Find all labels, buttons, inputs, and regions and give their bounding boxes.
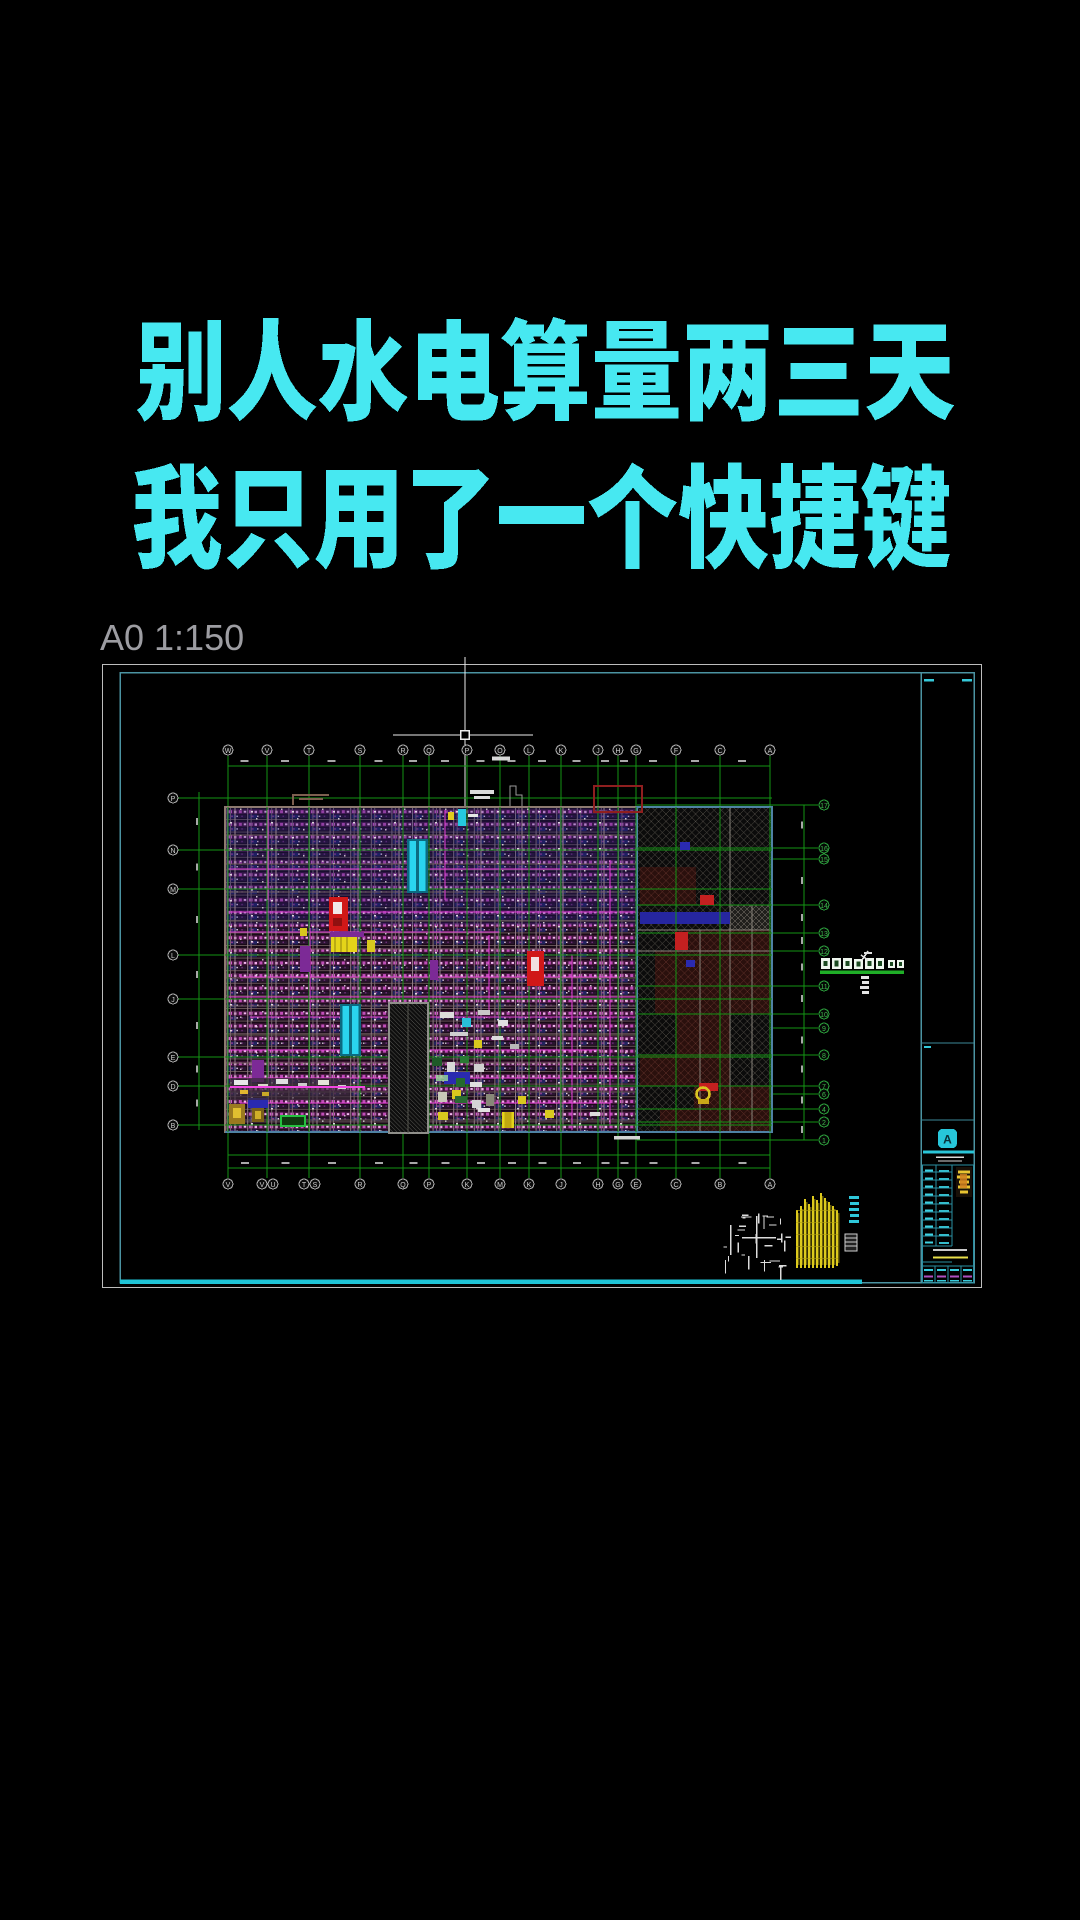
svg-text:J: J xyxy=(559,1182,563,1189)
svg-text:P: P xyxy=(427,1182,432,1189)
svg-text:V: V xyxy=(265,748,270,755)
svg-text:T: T xyxy=(307,748,312,755)
svg-text:9: 9 xyxy=(822,1026,826,1033)
svg-text:11: 11 xyxy=(820,984,827,991)
svg-text:R: R xyxy=(400,748,405,755)
svg-text:L: L xyxy=(527,748,531,755)
svg-text:J: J xyxy=(171,997,175,1004)
svg-text:16: 16 xyxy=(820,846,828,853)
svg-text:A: A xyxy=(768,748,773,755)
svg-text:A: A xyxy=(768,1182,773,1189)
svg-text:1: 1 xyxy=(822,1138,826,1145)
svg-text:15: 15 xyxy=(820,857,828,864)
svg-text:10: 10 xyxy=(820,1012,828,1019)
svg-text:13: 13 xyxy=(820,931,828,938)
svg-text:S: S xyxy=(313,1182,318,1189)
svg-text:M: M xyxy=(170,887,176,894)
svg-text:W: W xyxy=(225,748,232,755)
svg-text:B: B xyxy=(718,1182,723,1189)
svg-text:P: P xyxy=(171,796,176,803)
svg-text:A0 1:150: A0 1:150 xyxy=(100,617,244,658)
svg-text:B: B xyxy=(171,1123,176,1130)
svg-text:H: H xyxy=(595,1182,600,1189)
svg-text:T: T xyxy=(302,1182,307,1189)
svg-text:J: J xyxy=(596,748,600,755)
svg-text:G: G xyxy=(633,748,638,755)
svg-text:E: E xyxy=(634,1182,639,1189)
svg-text:F: F xyxy=(674,748,678,755)
svg-text:H: H xyxy=(615,748,620,755)
svg-text:L: L xyxy=(171,953,175,960)
svg-text:P: P xyxy=(465,748,470,755)
svg-text:K: K xyxy=(527,1182,532,1189)
svg-text:V: V xyxy=(226,1182,231,1189)
svg-text:V: V xyxy=(260,1182,265,1189)
svg-text:14: 14 xyxy=(820,903,828,910)
svg-text:N: N xyxy=(170,848,175,855)
svg-text:Q: Q xyxy=(400,1182,406,1189)
svg-text:U: U xyxy=(270,1182,275,1189)
svg-text:K: K xyxy=(465,1182,470,1189)
svg-text:O: O xyxy=(497,748,503,755)
svg-text:E: E xyxy=(171,1055,176,1062)
svg-text:K: K xyxy=(559,748,564,755)
svg-text:6: 6 xyxy=(822,1092,826,1099)
svg-text:S: S xyxy=(358,748,363,755)
svg-text:M: M xyxy=(497,1182,503,1189)
svg-text:C: C xyxy=(673,1182,678,1189)
svg-text:C: C xyxy=(717,748,722,755)
svg-text:17: 17 xyxy=(820,803,828,810)
svg-text:R: R xyxy=(357,1182,362,1189)
svg-text:Q: Q xyxy=(426,748,432,755)
svg-text:2: 2 xyxy=(822,1120,826,1127)
svg-text:A: A xyxy=(943,1133,952,1147)
svg-text:G: G xyxy=(615,1182,620,1189)
svg-text:8: 8 xyxy=(822,1053,826,1060)
svg-text:D: D xyxy=(170,1084,175,1091)
svg-text:4: 4 xyxy=(822,1107,826,1114)
svg-text:12: 12 xyxy=(820,949,828,956)
